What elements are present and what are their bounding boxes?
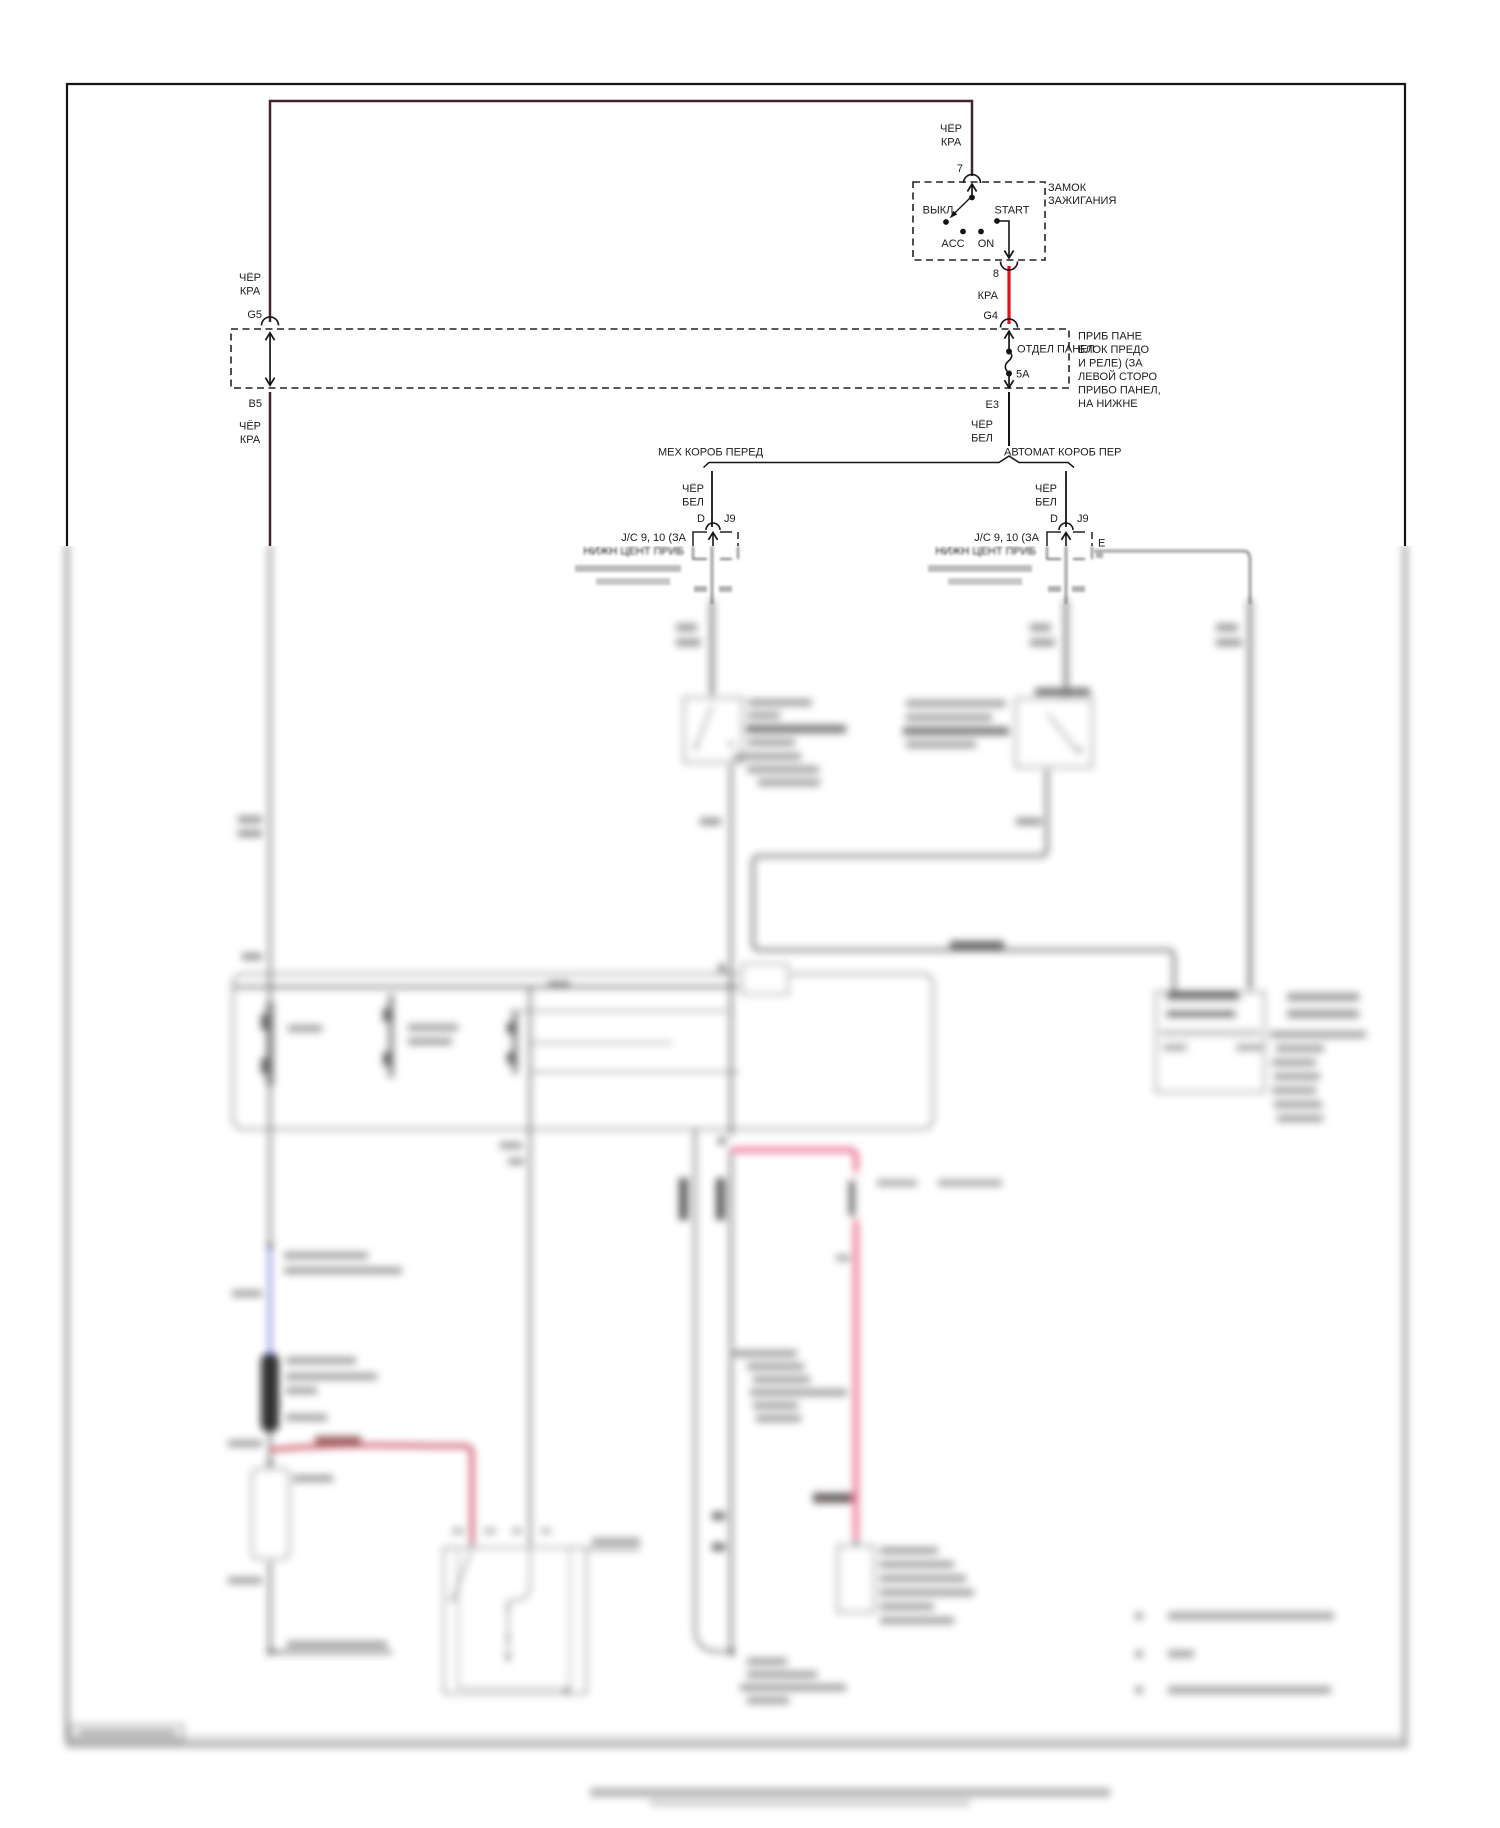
svg-text:J/C 9, 10 (ЗА: J/C 9, 10 (ЗА xyxy=(974,532,1039,544)
svg-text:БЕЛ: БЕЛ xyxy=(971,433,993,445)
svg-text:КРА: КРА xyxy=(941,137,962,149)
svg-text:ЧЁР: ЧЁР xyxy=(940,123,962,135)
svg-text:ACC: ACC xyxy=(941,238,964,250)
svg-text:D: D xyxy=(697,513,705,525)
svg-text:B5: B5 xyxy=(249,398,262,410)
svg-text:J9: J9 xyxy=(1077,513,1089,525)
svg-text:J/C 9, 10 (ЗА: J/C 9, 10 (ЗА xyxy=(621,532,686,544)
svg-text:ВЫКЛ: ВЫКЛ xyxy=(923,205,954,217)
svg-text:G5: G5 xyxy=(247,309,262,321)
svg-text:ЧЁР: ЧЁР xyxy=(239,272,261,284)
svg-text:ЧЁР: ЧЁР xyxy=(1035,483,1057,495)
svg-text:КРА: КРА xyxy=(240,434,261,446)
svg-text:7: 7 xyxy=(957,163,963,175)
svg-text:ЗАМОК: ЗАМОК xyxy=(1048,182,1087,194)
svg-text:БЛОК ПРЕДО: БЛОК ПРЕДО xyxy=(1078,344,1149,356)
svg-text:КРА: КРА xyxy=(240,286,261,298)
svg-text:МЕХ КОРОБ ПЕРЕД: МЕХ КОРОБ ПЕРЕД xyxy=(658,447,764,459)
svg-text:ЧЁР: ЧЁР xyxy=(971,419,993,431)
svg-text:НА НИЖНЕ: НА НИЖНЕ xyxy=(1078,398,1138,410)
svg-text:ЛЕВОЙ СТОРО: ЛЕВОЙ СТОРО xyxy=(1078,370,1158,383)
svg-text:D: D xyxy=(1050,513,1058,525)
svg-text:8: 8 xyxy=(993,268,999,280)
svg-text:БЕЛ: БЕЛ xyxy=(1035,497,1057,509)
svg-text:ПРИБ ПАНЕ: ПРИБ ПАНЕ xyxy=(1078,331,1142,343)
svg-text:АВТОМАТ КОРОБ ПЕР: АВТОМАТ КОРОБ ПЕР xyxy=(1004,447,1121,459)
svg-text:J9: J9 xyxy=(724,513,736,525)
svg-text:E: E xyxy=(1098,538,1105,550)
svg-text:БЕЛ: БЕЛ xyxy=(682,497,704,509)
svg-text:START: START xyxy=(994,205,1029,217)
svg-text:ЗАЖИГАНИЯ: ЗАЖИГАНИЯ xyxy=(1048,195,1116,207)
svg-text:ЧЁР: ЧЁР xyxy=(682,483,704,495)
svg-text:НИЖН ЦЕНТ ПРИБ: НИЖН ЦЕНТ ПРИБ xyxy=(935,546,1036,558)
svg-text:E3: E3 xyxy=(986,399,999,411)
svg-text:НИЖН ЦЕНТ ПРИБ: НИЖН ЦЕНТ ПРИБ xyxy=(583,546,684,558)
svg-text:G4: G4 xyxy=(983,310,998,322)
svg-text:ЧЁР: ЧЁР xyxy=(239,421,261,433)
svg-text:ON: ON xyxy=(978,238,995,250)
svg-text:ПРИБО ПАНЕЛ,: ПРИБО ПАНЕЛ, xyxy=(1078,385,1161,397)
svg-text:5A: 5A xyxy=(1016,369,1030,381)
svg-text:И РЕЛЕ) (ЗА: И РЕЛЕ) (ЗА xyxy=(1078,358,1143,370)
svg-text:КРА: КРА xyxy=(978,290,999,302)
